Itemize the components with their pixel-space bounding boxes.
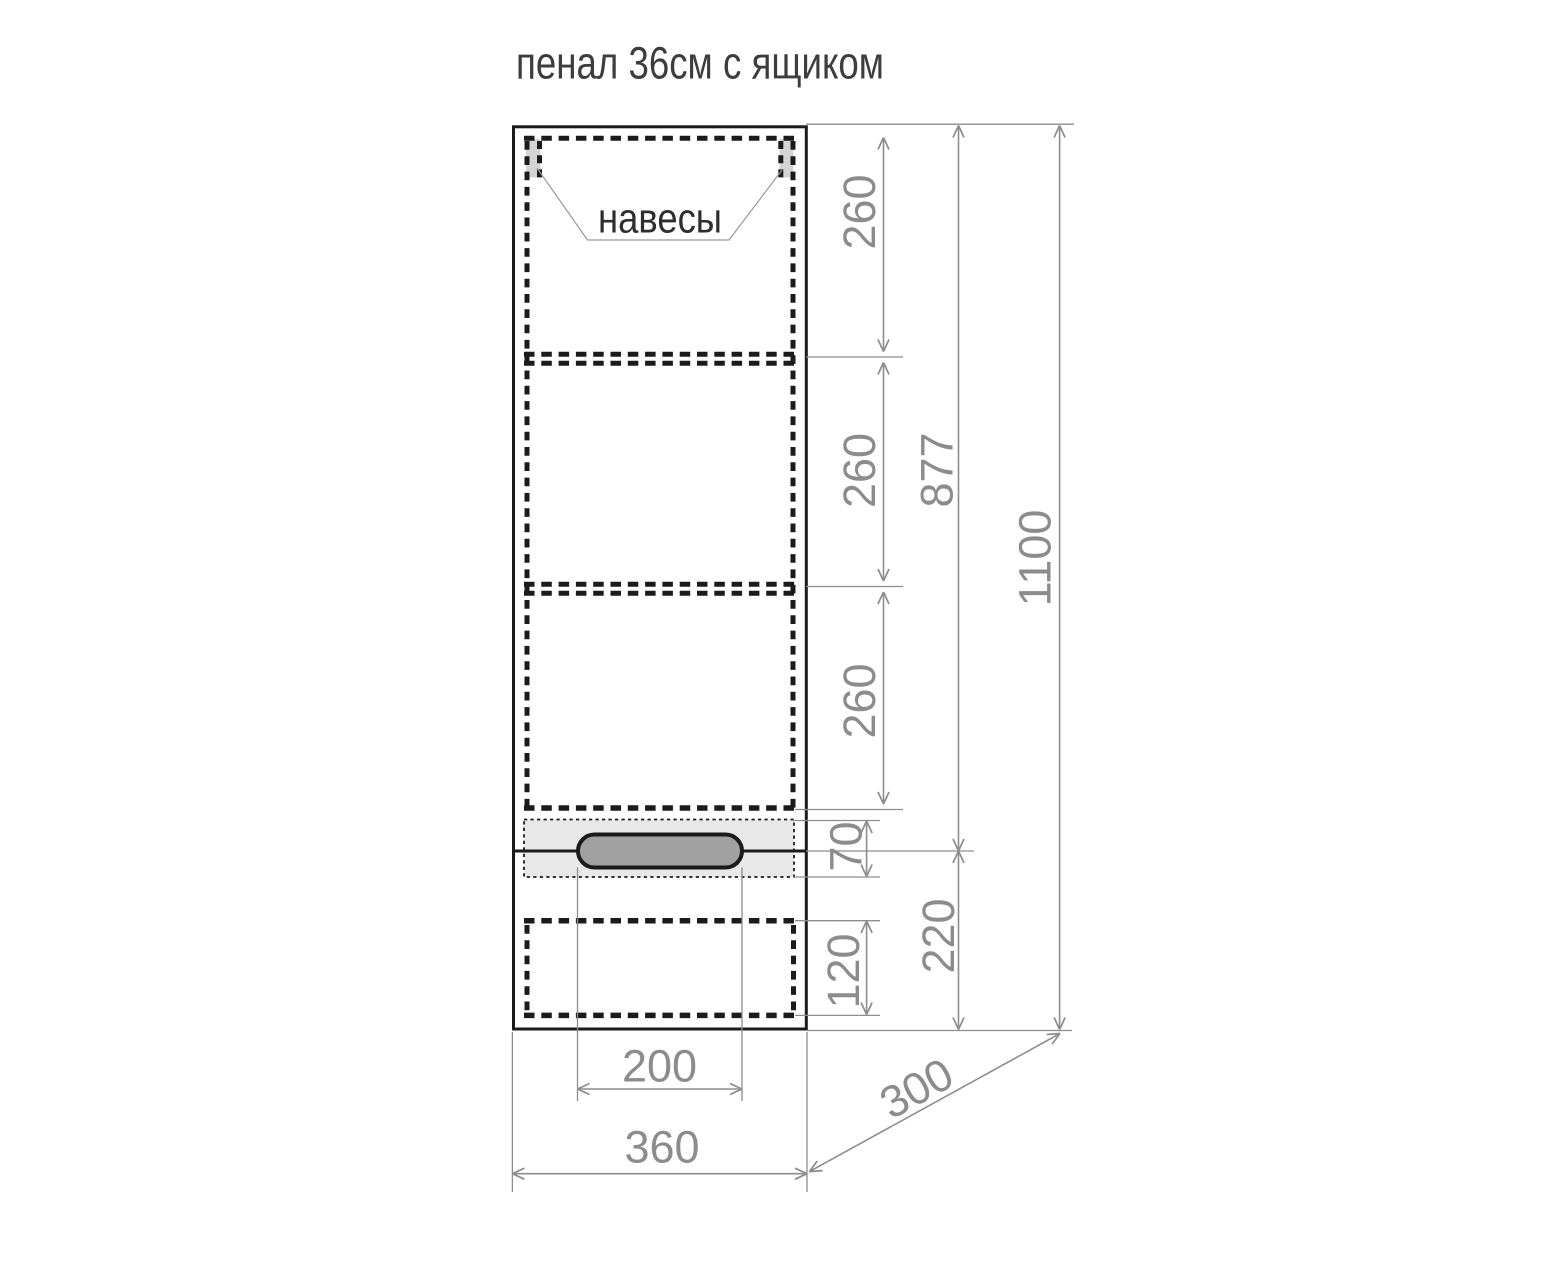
svg-text:260: 260 xyxy=(834,663,885,738)
svg-text:1100: 1100 xyxy=(1009,510,1060,607)
svg-text:360: 360 xyxy=(624,1121,699,1172)
svg-text:70: 70 xyxy=(820,821,871,871)
svg-text:200: 200 xyxy=(622,1040,697,1091)
svg-text:220: 220 xyxy=(913,898,964,973)
svg-text:260: 260 xyxy=(834,433,885,508)
svg-text:120: 120 xyxy=(818,933,869,1008)
svg-text:навесы: навесы xyxy=(598,194,722,241)
svg-text:877: 877 xyxy=(911,432,962,507)
svg-text:пенал 36см с ящиком: пенал 36см с ящиком xyxy=(516,38,884,89)
svg-text:260: 260 xyxy=(834,174,885,249)
